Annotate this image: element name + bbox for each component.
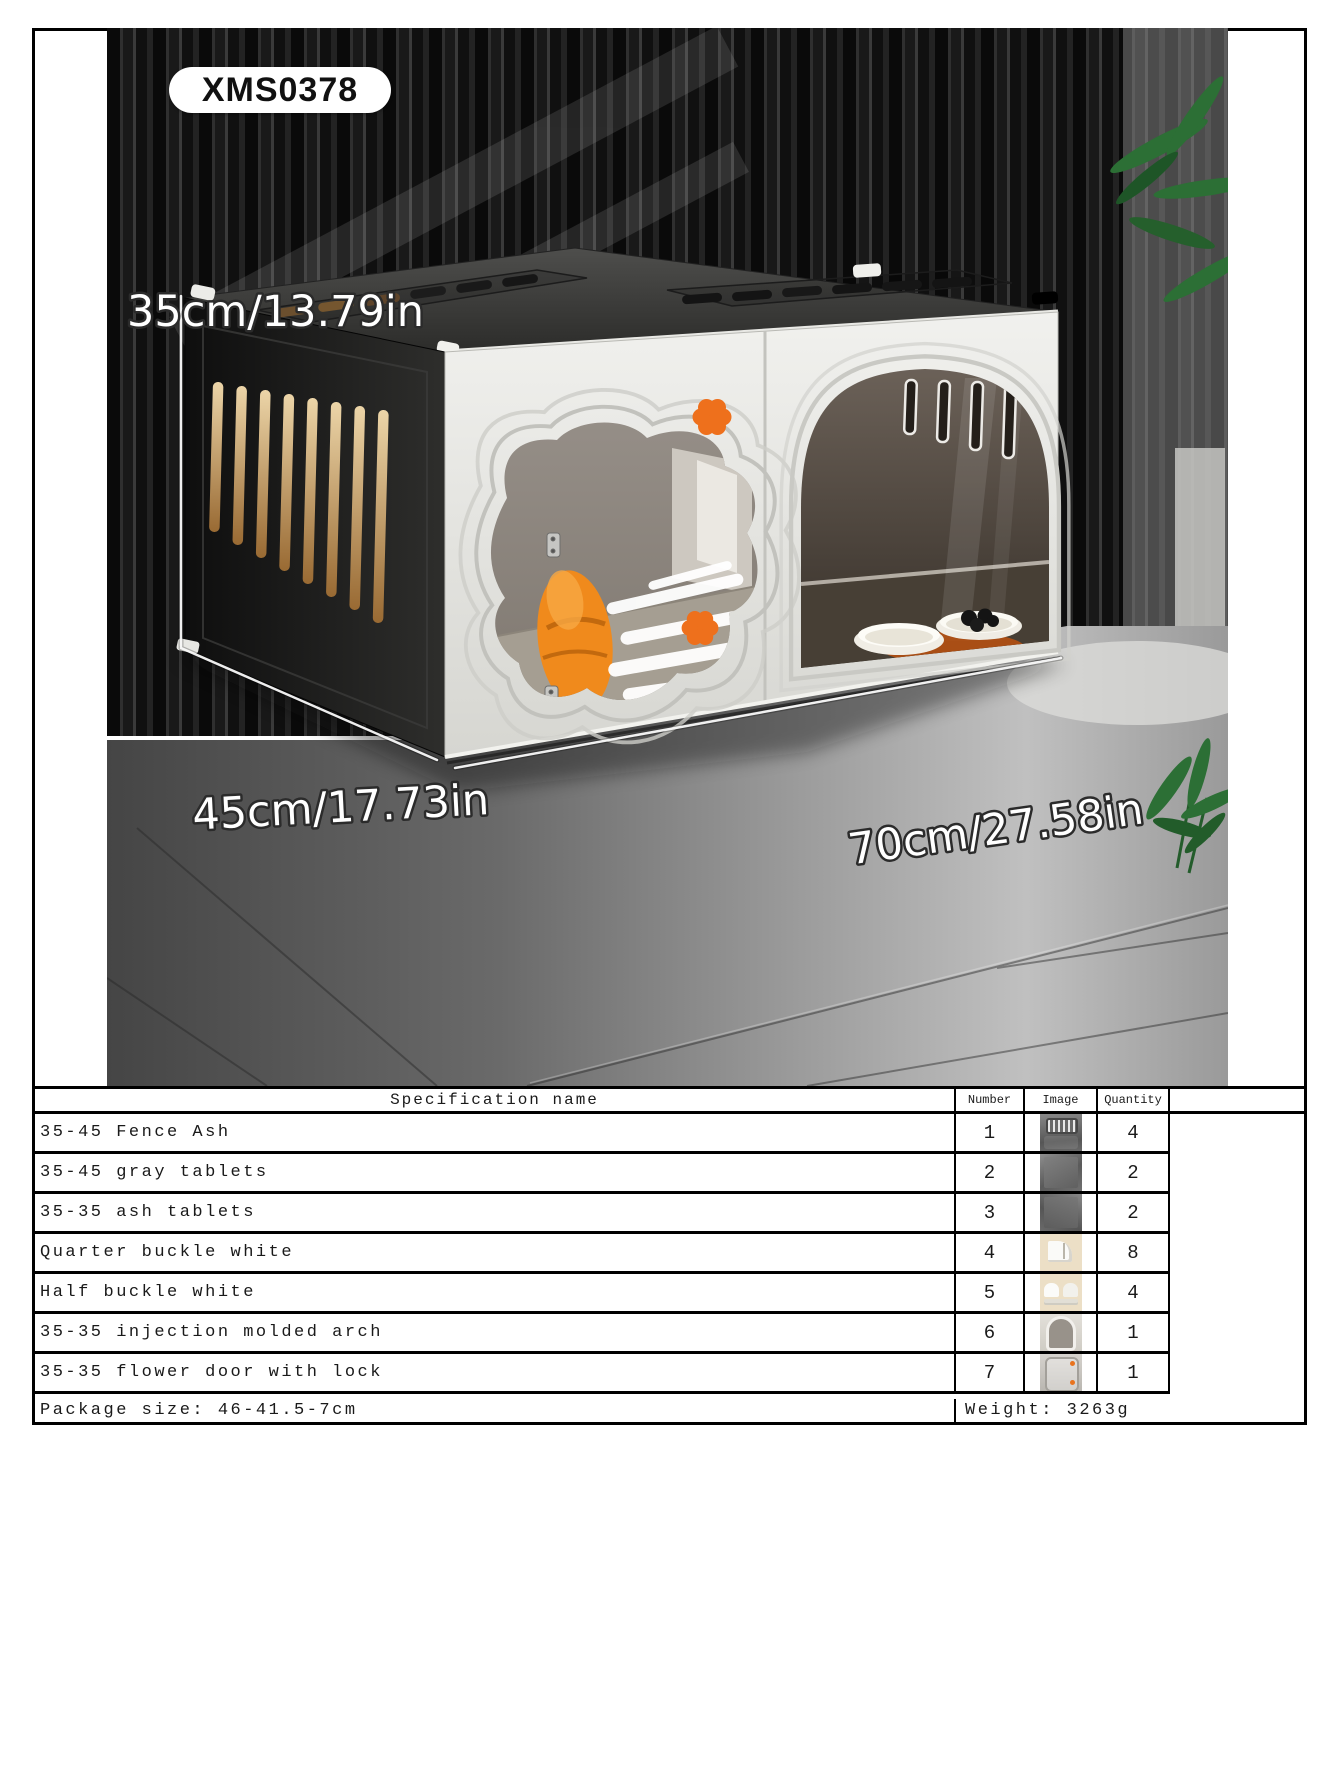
header-number: Number <box>956 1089 1025 1111</box>
table-row: 35-45 Fence Ash 1 4 <box>35 1114 1170 1154</box>
image-cell <box>1025 1274 1098 1311</box>
table-row: 35-35 injection molded arch 6 1 <box>35 1314 1170 1354</box>
image-cell <box>1025 1114 1098 1151</box>
quarter-buckle-thumbnail <box>1040 1234 1082 1271</box>
weight-cell: Weight: 3263g <box>956 1399 1304 1423</box>
quantity-cell: 4 <box>1098 1274 1170 1311</box>
arch-thumbnail <box>1040 1314 1082 1351</box>
spec-name-cell: 35-35 flower door with lock <box>35 1354 956 1391</box>
page: { "product": { "badge": "XMS0378", "dime… <box>0 0 1340 1785</box>
image-cell <box>1025 1154 1098 1191</box>
table-row: Half buckle white 5 4 <box>35 1274 1170 1314</box>
package-size-cell: Package size: 46-41.5-7cm <box>35 1399 956 1423</box>
quantity-cell: 2 <box>1098 1154 1170 1191</box>
model-badge: XMS0378 <box>169 67 391 113</box>
quantity-cell: 4 <box>1098 1114 1170 1151</box>
image-cell <box>1025 1234 1098 1271</box>
table-header-row: Specification name Number Image Quantity <box>35 1089 1304 1114</box>
number-cell: 4 <box>956 1234 1025 1271</box>
table-row: Quarter buckle white 4 8 <box>35 1234 1170 1274</box>
half-buckle-icon <box>853 263 882 278</box>
image-cell <box>1025 1314 1098 1351</box>
table-footer-row: Package size: 46-41.5-7cm Weight: 3263g <box>35 1399 1304 1423</box>
product-photo-scene: 35cm/13.79in 45cm/17.73in 70cm/27.58in <box>107 28 1228 1086</box>
half-buckle-thumbnail <box>1040 1274 1082 1311</box>
header-specification-name: Specification name <box>35 1089 956 1111</box>
dimension-label-height: 35cm/13.79in <box>127 287 424 337</box>
spec-name-cell: 35-45 Fence Ash <box>35 1114 956 1151</box>
number-cell: 3 <box>956 1194 1025 1231</box>
table-row: 35-35 flower door with lock 7 1 <box>35 1354 1170 1394</box>
spec-name-cell: 35-35 injection molded arch <box>35 1314 956 1351</box>
spec-name-cell: Quarter buckle white <box>35 1234 956 1271</box>
product-photo: 35cm/13.79in 45cm/17.73in 70cm/27.58in X… <box>107 28 1228 1086</box>
header-image: Image <box>1025 1089 1098 1111</box>
header-empty-cell <box>1170 1089 1304 1111</box>
quantity-cell: 8 <box>1098 1234 1170 1271</box>
number-cell: 6 <box>956 1314 1025 1351</box>
quantity-cell: 1 <box>1098 1314 1170 1351</box>
number-cell: 1 <box>956 1114 1025 1151</box>
number-cell: 2 <box>956 1154 1025 1191</box>
table-empty-column <box>1170 1114 1304 1399</box>
corner-buckle-icon <box>1032 291 1059 305</box>
quantity-cell: 1 <box>1098 1354 1170 1391</box>
quantity-cell: 2 <box>1098 1194 1170 1231</box>
image-cell <box>1025 1194 1098 1231</box>
spec-table: Specification name Number Image Quantity… <box>32 1086 1307 1425</box>
spec-name-cell: 35-45 gray tablets <box>35 1154 956 1191</box>
table-row: 35-45 gray tablets 2 2 <box>35 1154 1170 1194</box>
gray-tablet-thumbnail <box>1040 1154 1082 1191</box>
flower-door-thumbnail <box>1040 1354 1082 1391</box>
fence-ash-thumbnail <box>1040 1114 1082 1151</box>
table-row: 35-35 ash tablets 3 2 <box>35 1194 1170 1234</box>
spec-name-cell: 35-35 ash tablets <box>35 1194 956 1231</box>
header-quantity: Quantity <box>1098 1089 1170 1111</box>
number-cell: 7 <box>956 1354 1025 1391</box>
image-cell <box>1025 1354 1098 1391</box>
spec-name-cell: Half buckle white <box>35 1274 956 1311</box>
ash-tablet-thumbnail <box>1040 1194 1082 1231</box>
number-cell: 5 <box>956 1274 1025 1311</box>
